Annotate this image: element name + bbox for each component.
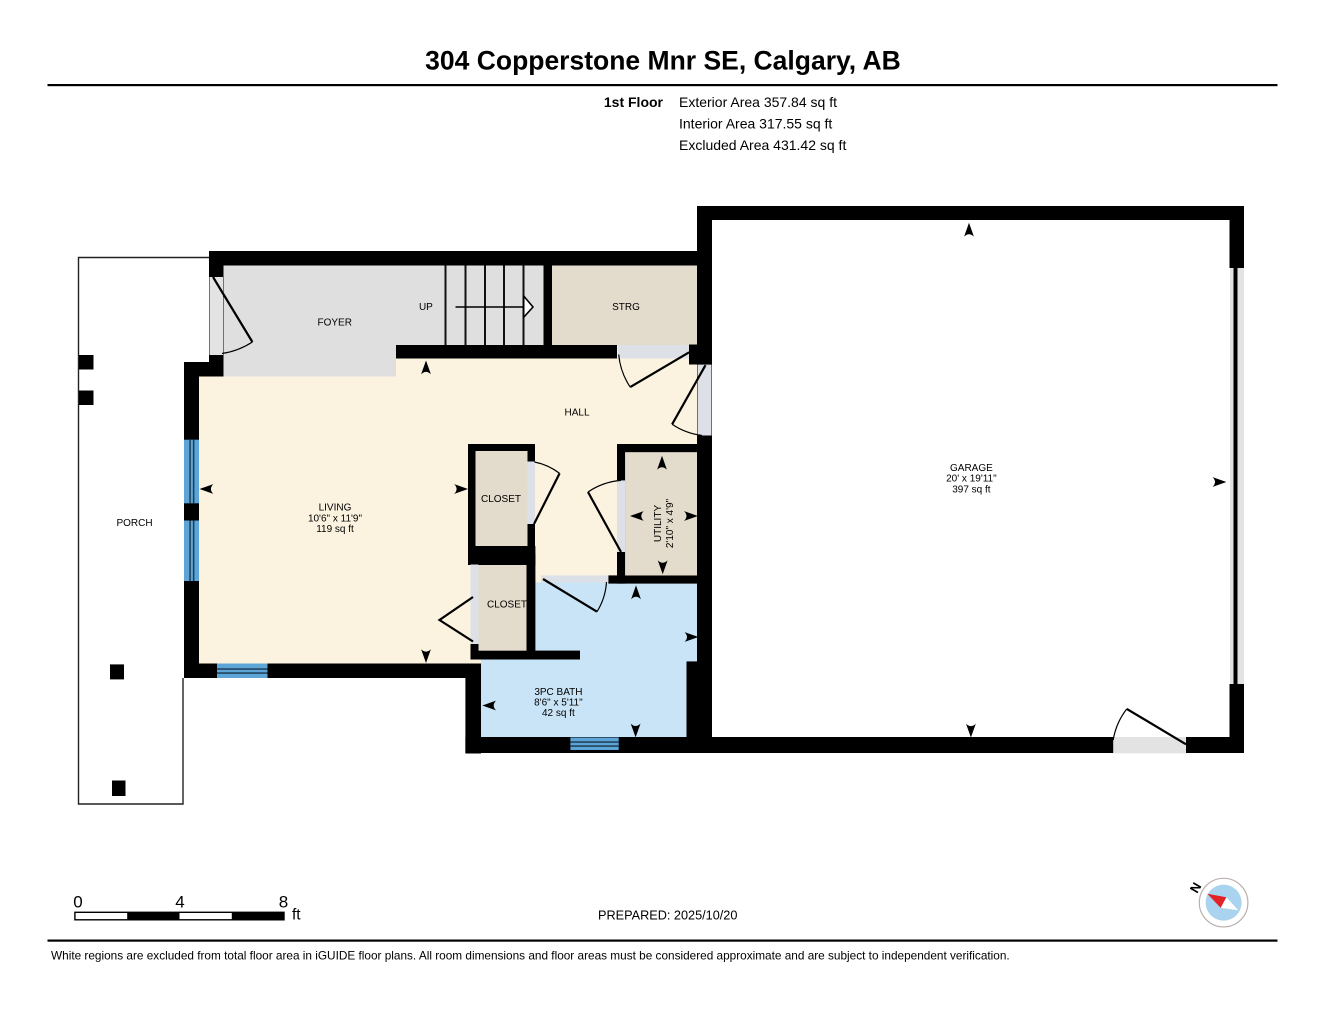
svg-text:8'6" x 5'11": 8'6" x 5'11" [534, 698, 583, 709]
svg-text:STRG: STRG [612, 302, 640, 313]
svg-text:304 Copperstone Mnr SE, Calgar: 304 Copperstone Mnr SE, Calgary, AB [425, 46, 901, 76]
svg-text:42 sq ft: 42 sq ft [542, 708, 575, 719]
svg-text:Excluded Area 431.42 sq ft: Excluded Area 431.42 sq ft [679, 137, 846, 153]
svg-text:Exterior Area 357.84 sq ft: Exterior Area 357.84 sq ft [679, 94, 837, 110]
svg-text:8: 8 [279, 892, 288, 911]
svg-text:2'10" x 4'9": 2'10" x 4'9" [665, 498, 676, 548]
svg-text:FOYER: FOYER [317, 318, 351, 329]
svg-text:ft: ft [292, 907, 301, 924]
svg-text:397 sq ft: 397 sq ft [952, 485, 991, 496]
svg-text:PORCH: PORCH [116, 518, 152, 529]
svg-text:0: 0 [73, 892, 82, 911]
svg-text:PREPARED: 2025/10/20: PREPARED: 2025/10/20 [598, 908, 737, 922]
svg-text:GARAGE: GARAGE [950, 463, 993, 474]
svg-text:3PC BATH: 3PC BATH [534, 687, 582, 698]
svg-text:UP: UP [419, 302, 433, 313]
svg-text:LIVING: LIVING [319, 503, 352, 514]
svg-text:119 sq ft: 119 sq ft [316, 524, 354, 535]
svg-text:Interior Area 317.55 sq ft: Interior Area 317.55 sq ft [679, 116, 832, 132]
svg-text:4: 4 [175, 892, 184, 911]
svg-text:HALL: HALL [564, 408, 589, 419]
svg-text:UTILITY: UTILITY [653, 505, 664, 543]
svg-text:CLOSET: CLOSET [481, 494, 521, 505]
svg-text:1st Floor: 1st Floor [604, 94, 664, 110]
svg-text:10'6" x 11'9": 10'6" x 11'9" [308, 513, 363, 524]
svg-text:White regions are excluded fro: White regions are excluded from total fl… [51, 948, 1010, 962]
svg-text:CLOSET: CLOSET [487, 600, 527, 611]
svg-text:20' x 19'11": 20' x 19'11" [946, 474, 997, 485]
